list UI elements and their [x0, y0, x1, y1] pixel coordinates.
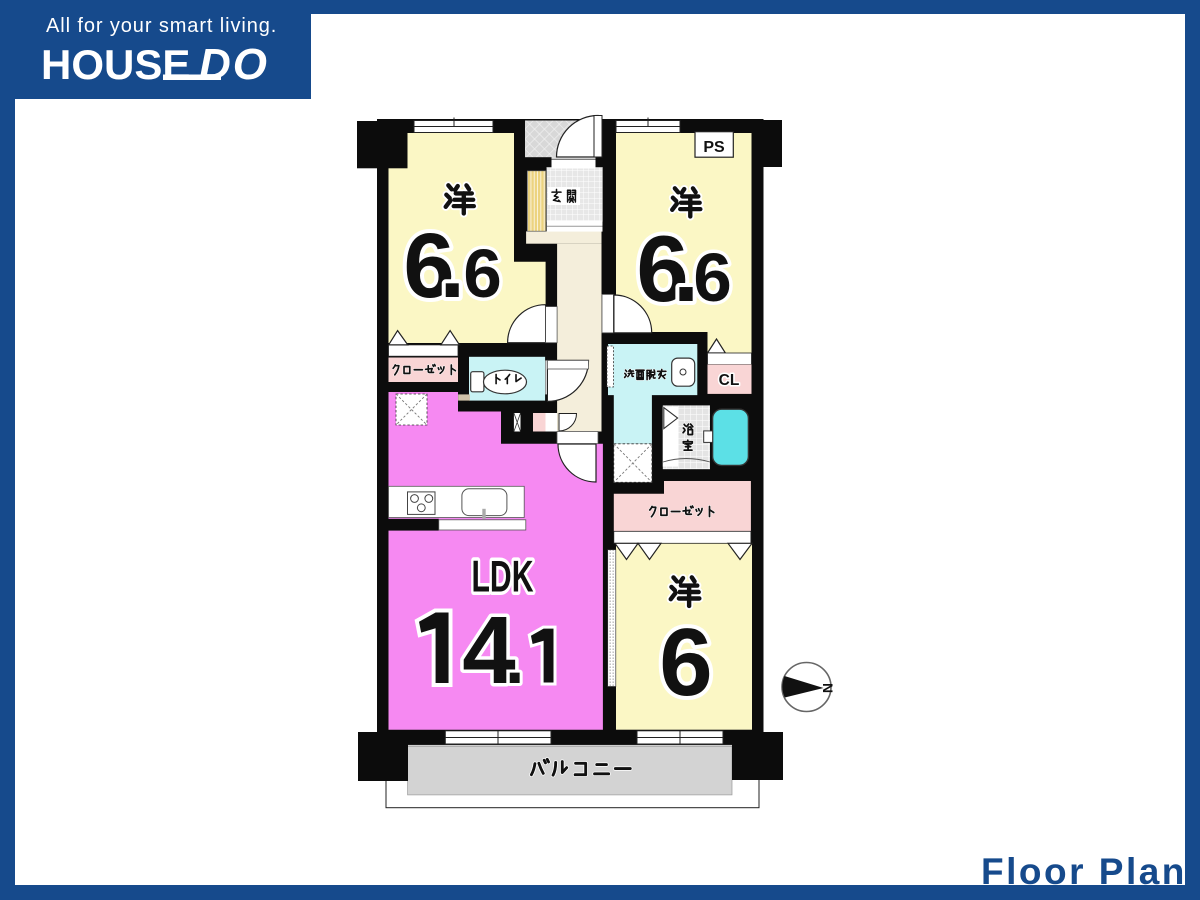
svg-text:N: N: [820, 683, 836, 693]
svg-text:DO: DO: [199, 40, 269, 89]
svg-text:PS: PS: [703, 139, 725, 156]
svg-text:.: .: [505, 620, 524, 698]
svg-text:All for your smart living.: All for your smart living.: [46, 15, 277, 37]
svg-text:.: .: [440, 215, 466, 317]
svg-text:6: 6: [693, 239, 731, 316]
svg-text:CL: CL: [719, 372, 740, 389]
svg-text:HOUSE: HOUSE: [41, 41, 190, 88]
svg-text:Floor Plan: Floor Plan: [981, 851, 1187, 892]
svg-text:6: 6: [463, 235, 501, 312]
svg-text:6: 6: [659, 609, 712, 716]
svg-text:LDK: LDK: [472, 553, 534, 602]
